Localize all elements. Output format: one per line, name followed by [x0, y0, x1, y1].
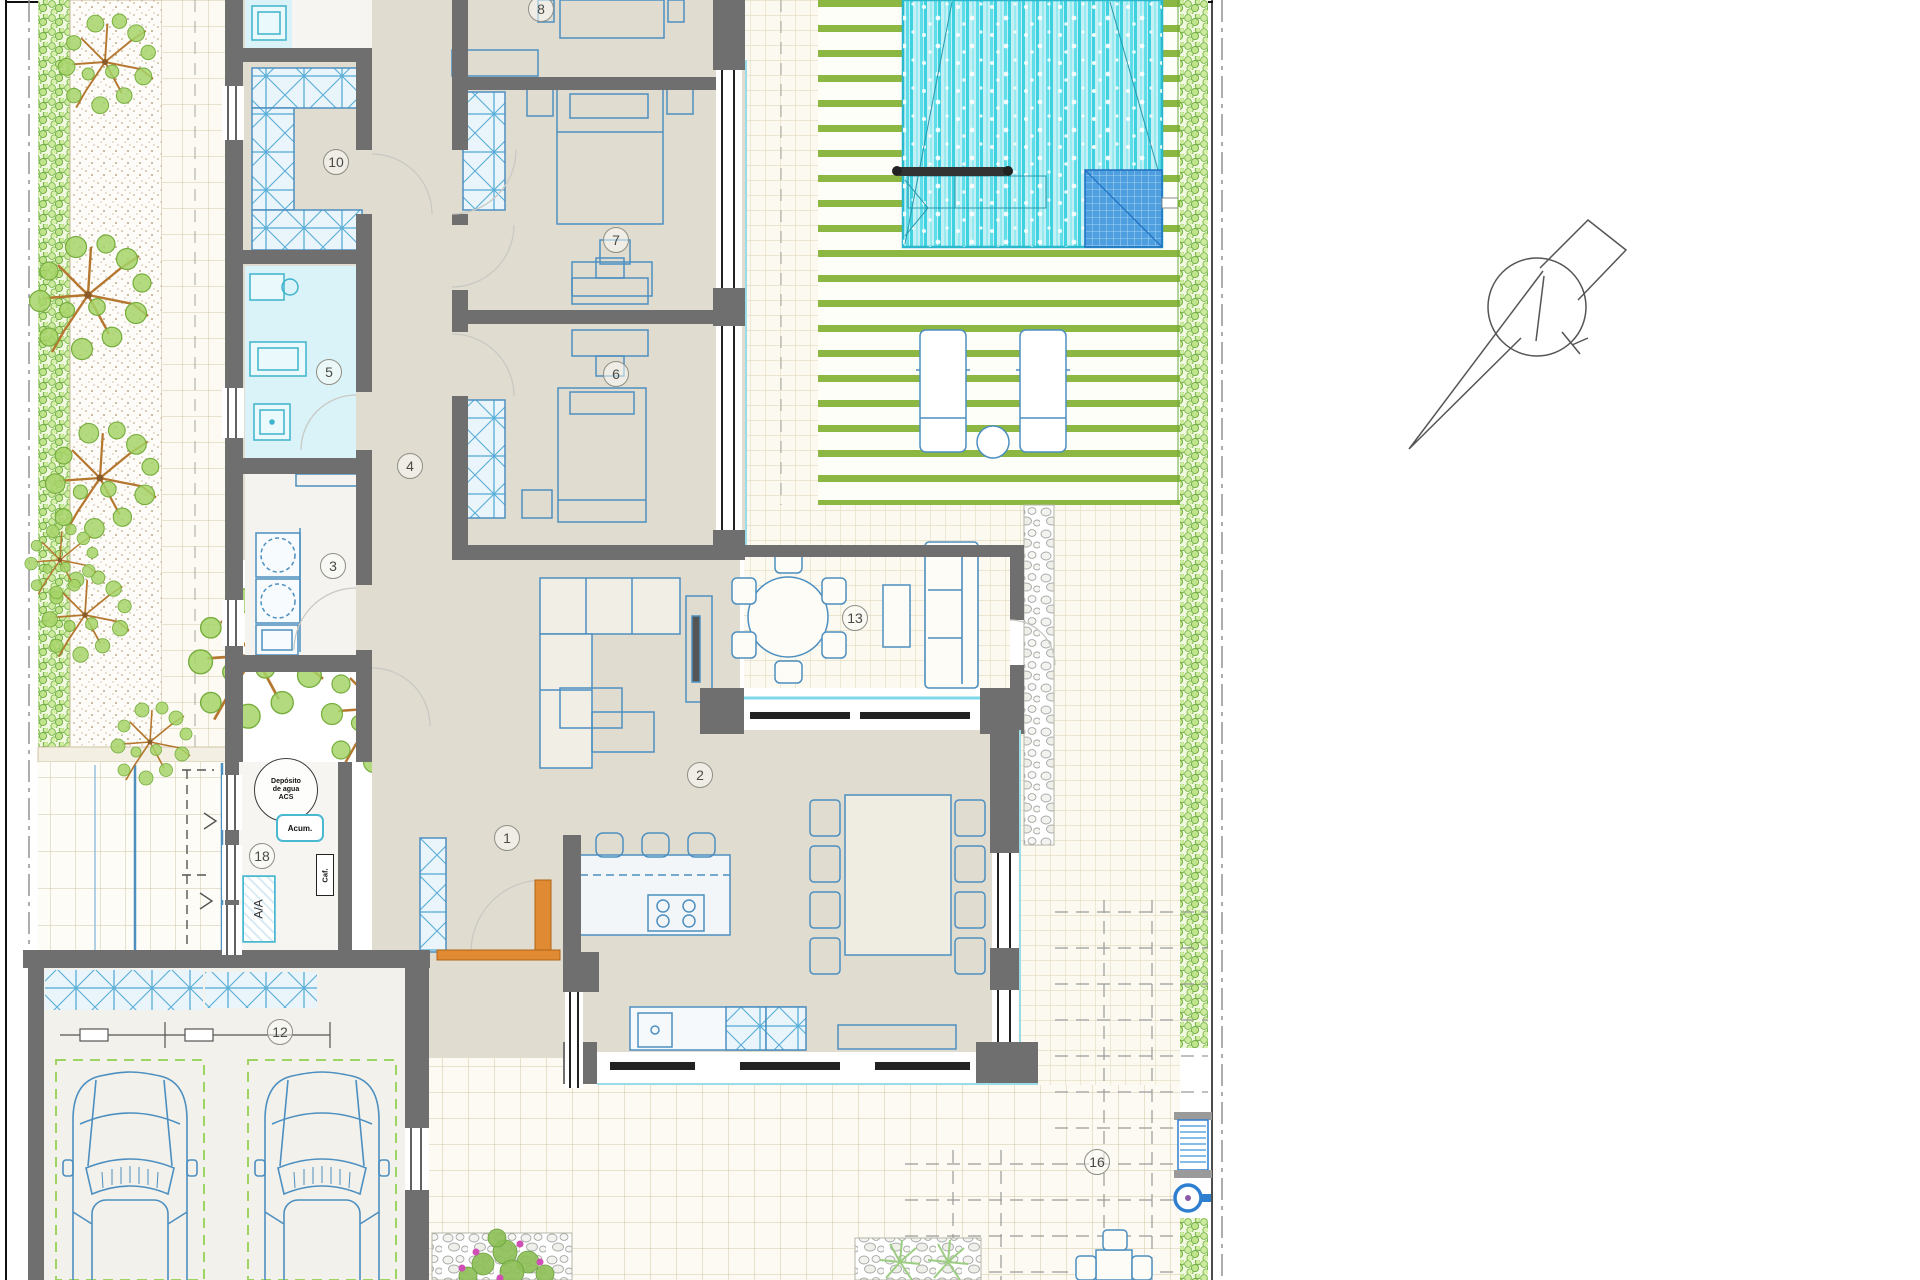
living-south-glazing [597, 1052, 1038, 1084]
pool-cover-roller [896, 167, 1008, 176]
wardrobe [465, 400, 505, 518]
water-tank-line2: de agua [273, 786, 299, 794]
wardrobe [252, 68, 362, 108]
floor-plan-sheet: 1 2 3 4 5 6 7 8 10 12 13 16 18 Depósito … [0, 0, 1920, 1280]
sun-lounger [1016, 330, 1070, 452]
pebble-path [1024, 505, 1054, 845]
east-terrace-tiles [1052, 505, 1180, 1085]
closet [420, 838, 446, 952]
north-arrow [1409, 220, 1626, 449]
deck-side-table [977, 426, 1009, 458]
room-label-16: 16 [1084, 1149, 1110, 1175]
room-label-10: 10 [323, 149, 349, 175]
sun-lounger [916, 330, 970, 452]
right-hedge-lower [1180, 1218, 1208, 1280]
wardrobe [463, 92, 505, 210]
swimming-pool [892, 0, 1178, 247]
covered-terrace [732, 542, 1010, 688]
room-label-5: 5 [316, 359, 342, 385]
pool-skimmer [1162, 198, 1178, 208]
room-label-4: 4 [397, 453, 423, 479]
garage-storage [205, 972, 317, 1008]
water-tank-line1: Depósito [271, 778, 301, 786]
water-tank-line3: ACS [279, 794, 294, 802]
kitchen-counter [630, 1007, 806, 1050]
forecourt [38, 762, 228, 958]
wardrobe [252, 210, 362, 250]
boiler-label-chip: Caf. [316, 854, 334, 896]
garage-window [405, 1128, 429, 1190]
air-conditioning-unit: A/A [243, 876, 275, 942]
terrace-side-table [883, 585, 910, 647]
outdoor-shower-unit [1174, 1112, 1212, 1211]
boiler-label: Caf. [320, 868, 329, 882]
room-label-18: 18 [249, 843, 275, 869]
room-label-2: 2 [687, 762, 713, 788]
room-label-1: 1 [494, 825, 520, 851]
garage-storage [45, 970, 203, 1010]
wardrobe [252, 108, 294, 210]
room-label-12: 12 [267, 1019, 293, 1045]
outdoor-sofa [925, 542, 978, 688]
garage [44, 968, 405, 1280]
room-label-13: 13 [842, 605, 868, 631]
room-label-7: 7 [603, 227, 629, 253]
left-hedge [38, 0, 70, 747]
room-label-3: 3 [320, 553, 346, 579]
floor-plan-drawing [0, 0, 1920, 1280]
room-label-6: 6 [603, 361, 629, 387]
pebble-bed [855, 1238, 981, 1280]
air-conditioning-label: A/A [252, 899, 266, 918]
entry-west-glazing [565, 992, 583, 1088]
right-hedge [1180, 0, 1208, 1048]
water-tank-label: Depósito de agua ACS [254, 758, 318, 822]
accumulator-label: Acum. [276, 814, 324, 842]
terrace-south-glazing [744, 698, 980, 730]
